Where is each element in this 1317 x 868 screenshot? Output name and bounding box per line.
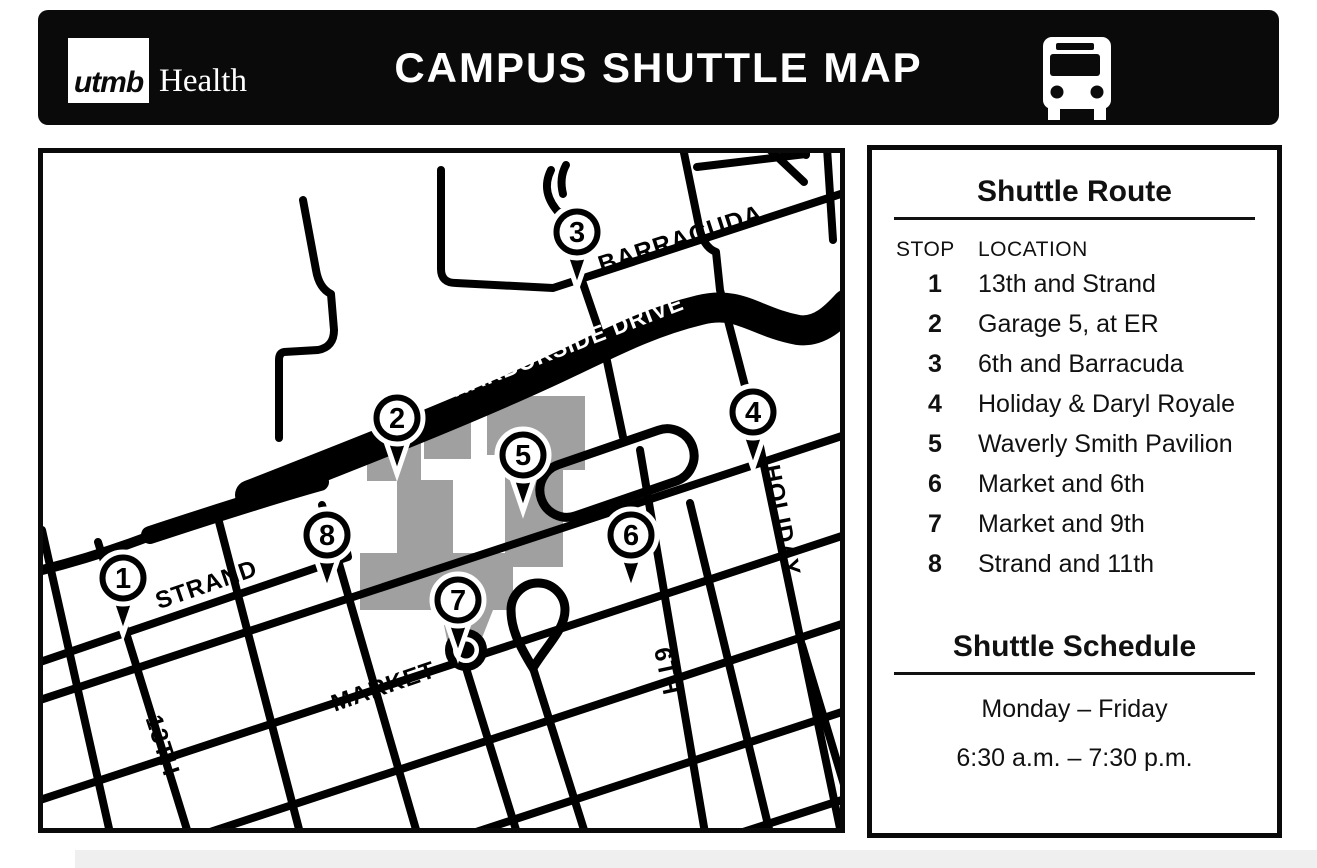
col-stop: STOP	[896, 238, 978, 262]
pin-number: 3	[569, 217, 585, 249]
bus-icon	[1043, 32, 1111, 133]
street-label-barracuda: BARRACUDA	[595, 200, 767, 280]
pin-number: 1	[115, 563, 131, 595]
route-row-stop-num: 8	[900, 544, 970, 584]
pin-number: 5	[515, 440, 531, 472]
pin-number: 8	[319, 520, 335, 552]
route-row-location: 6th and Barracuda	[978, 344, 1184, 384]
route-row-stop-num: 2	[900, 304, 970, 344]
route-row-5: 5Waverly Smith Pavilion	[872, 424, 1277, 464]
route-row-stop-num: 3	[900, 344, 970, 384]
route-panel-title: Shuttle Route	[872, 175, 1277, 209]
pin-number: 6	[623, 520, 639, 552]
schedule-panel-title: Shuttle Schedule	[872, 630, 1277, 664]
route-table-header: STOP LOCATION	[896, 238, 1277, 262]
route-row-location: Market and 6th	[978, 464, 1145, 504]
route-row-2: 2Garage 5, at ER	[872, 304, 1277, 344]
route-row-stop-num: 5	[900, 424, 970, 464]
route-row-stop-num: 4	[900, 384, 970, 424]
route-row-location: Market and 9th	[978, 504, 1145, 544]
info-panel: Shuttle Route STOP LOCATION 113th and St…	[867, 145, 1282, 838]
route-row-location: Strand and 11th	[978, 544, 1154, 584]
route-title-rule	[894, 217, 1255, 220]
route-row-stop-num: 6	[900, 464, 970, 504]
col-location: LOCATION	[978, 238, 1088, 262]
schedule-title-rule	[894, 672, 1255, 675]
route-row-location: 13th and Strand	[978, 264, 1156, 304]
route-row-4: 4Holiday & Daryl Royale	[872, 384, 1277, 424]
street-label-13th: 13TH	[140, 712, 185, 780]
route-row-1: 113th and Strand	[872, 264, 1277, 304]
route-row-7: 7Market and 9th	[872, 504, 1277, 544]
campus-map: BARRACUDAHARBORSIDE DRIVESTRANDMARKET13T…	[38, 148, 845, 833]
route-row-stop-num: 1	[900, 264, 970, 304]
page-edge-strip	[75, 850, 1317, 868]
stop-pin-6: 6	[605, 509, 657, 591]
route-row-stop-num: 7	[900, 504, 970, 544]
header-bar: utmb Health CAMPUS SHUTTLE MAP	[38, 10, 1279, 125]
map-canvas: BARRACUDAHARBORSIDE DRIVESTRANDMARKET13T…	[38, 148, 845, 833]
pin-number: 7	[450, 585, 466, 617]
schedule-days: Monday – Friday	[872, 695, 1277, 724]
pin-number: 2	[389, 403, 405, 435]
route-row-location: Garage 5, at ER	[978, 304, 1159, 344]
schedule-hours: 6:30 a.m. – 7:30 p.m.	[872, 744, 1277, 773]
route-rows: 113th and Strand2Garage 5, at ER36th and…	[872, 264, 1277, 584]
route-row-6: 6Market and 6th	[872, 464, 1277, 504]
route-row-8: 8Strand and 11th	[872, 544, 1277, 584]
shuttle-map-poster: utmb Health CAMPUS SHUTTLE MAP	[0, 0, 1317, 868]
stop-pin-1: 1	[97, 552, 149, 634]
street-label-harborside: HARBORSIDE DRIVE	[447, 289, 687, 402]
pin-number: 4	[745, 397, 761, 429]
route-row-3: 36th and Barracuda	[872, 344, 1277, 384]
route-row-location: Waverly Smith Pavilion	[978, 424, 1233, 464]
route-row-location: Holiday & Daryl Royale	[978, 384, 1235, 424]
